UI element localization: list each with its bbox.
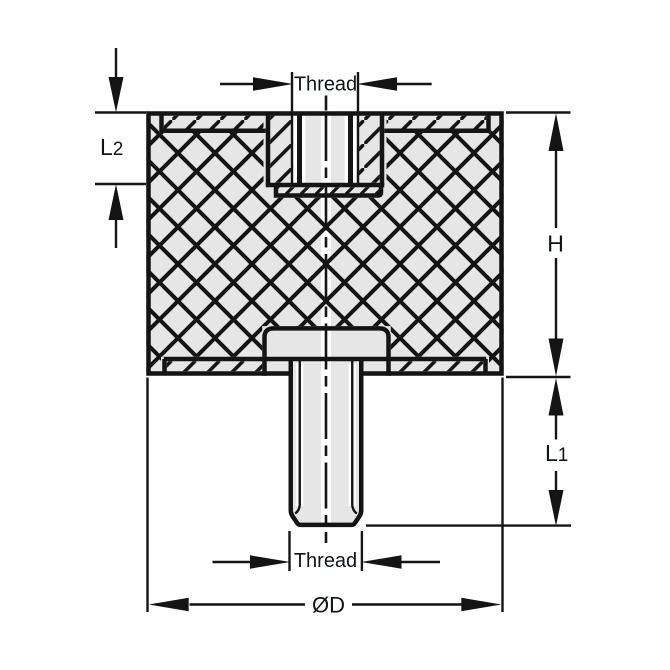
svg-text:Thread: Thread	[294, 74, 357, 96]
svg-text:Thread: Thread	[294, 550, 357, 572]
svg-text:L2: L2	[100, 134, 123, 160]
svg-text:L1: L1	[545, 440, 568, 466]
svg-text:ØD: ØD	[312, 592, 345, 617]
svg-text:H: H	[547, 231, 564, 257]
